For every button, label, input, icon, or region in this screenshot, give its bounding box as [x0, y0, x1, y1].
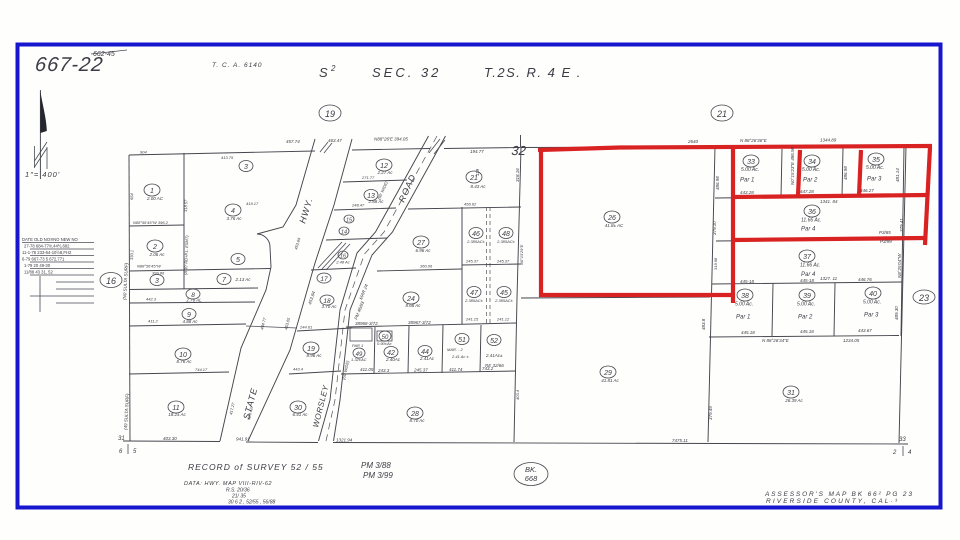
- svg-text:2.385AC±: 2.385AC±: [464, 298, 484, 303]
- svg-text:445.18: 445.18: [741, 330, 755, 335]
- svg-text:489.30: 489.30: [894, 306, 899, 320]
- svg-text:PAR 1: PAR 1: [352, 343, 363, 348]
- svg-text:1344.89: 1344.89: [820, 138, 837, 143]
- svg-text:N0°15'23"E 486.98: N0°15'23"E 486.98: [790, 146, 795, 185]
- svg-text:2.76 AL: 2.76 AL: [185, 298, 202, 303]
- svg-text:5: 5: [236, 257, 240, 264]
- svg-text:26.39 Ac: 26.39 Ac: [784, 398, 803, 403]
- svg-text:456.62: 456.62: [464, 202, 477, 207]
- svg-text:1: 1: [150, 188, 154, 195]
- svg-text:14: 14: [341, 230, 347, 236]
- svg-text:318.57: 318.57: [183, 199, 188, 212]
- svg-text:41.81 Ac: 41.81 Ac: [601, 378, 619, 383]
- svg-text:194.77: 194.77: [470, 149, 484, 154]
- svg-text:904: 904: [140, 150, 147, 155]
- svg-text:N 88°26'36"E: N 88°26'36"E: [740, 138, 768, 143]
- svg-text:2.385AC±: 2.385AC±: [466, 239, 486, 244]
- svg-text:2.27 Ac: 2.27 Ac: [376, 170, 393, 175]
- svg-text:1-79 20 49-30: 1-79 20 49-30: [24, 263, 51, 268]
- svg-text:445-18: 445-18: [740, 279, 755, 284]
- svg-text:45: 45: [500, 290, 508, 297]
- svg-text:SEC. 32: SEC. 32: [372, 65, 441, 80]
- svg-text:2.41Ac±: 2.41Ac±: [485, 353, 503, 358]
- svg-text:245.37: 245.37: [465, 259, 479, 264]
- svg-text:52: 52: [490, 338, 498, 345]
- svg-text:481.14: 481.14: [895, 168, 900, 182]
- svg-text:ASSESSOR'S MAP BK 66² PG: ASSESSOR'S MAP BK 66² PG 23: [764, 491, 912, 498]
- svg-text:11.66 Ac.: 11.66 Ac.: [800, 263, 821, 269]
- svg-text:319.98: 319.98: [713, 257, 718, 270]
- svg-text:19: 19: [307, 346, 315, 353]
- svg-text:27: 27: [416, 240, 426, 247]
- svg-text:6.96 Ac: 6.96 Ac: [415, 248, 431, 253]
- svg-text:15: 15: [346, 218, 353, 224]
- svg-text:37: 37: [803, 254, 812, 261]
- svg-text:Par 1: Par 1: [740, 178, 754, 184]
- svg-text:664: 664: [129, 192, 134, 200]
- svg-text:271.77: 271.77: [361, 175, 375, 180]
- svg-text:2.06 Ac: 2.06 Ac: [148, 252, 165, 257]
- svg-text:403.30: 403.30: [163, 436, 177, 441]
- svg-text:411.2: 411.2: [148, 319, 158, 324]
- svg-text:2: 2: [330, 64, 336, 73]
- svg-text:30 6 2 , 52/55 , 56/88: 30 6 2 , 52/55 , 56/88: [228, 500, 275, 506]
- svg-text:N8°25'04"W: N8°25'04"W: [897, 253, 902, 278]
- svg-text:941.91: 941.91: [236, 437, 250, 442]
- svg-text:248.47: 248.47: [351, 203, 365, 208]
- svg-text:486.98: 486.98: [715, 176, 720, 190]
- svg-text:12: 12: [380, 163, 388, 170]
- svg-text:16: 16: [106, 276, 116, 286]
- svg-text:30: 30: [294, 405, 302, 412]
- svg-text:1327. 11: 1327. 11: [820, 276, 838, 281]
- svg-text:27-78 684-77℗,44½,682: 27-78 684-77℗,44½,682: [24, 244, 70, 249]
- svg-text:445-18: 445-18: [800, 278, 815, 283]
- svg-text:N88°26'E 394.05: N88°26'E 394.05: [374, 137, 408, 142]
- svg-text:411.74: 411.74: [449, 367, 463, 372]
- svg-text:379.41: 379.41: [899, 218, 904, 232]
- svg-text:36: 36: [808, 209, 816, 216]
- svg-text:21: 21: [716, 109, 727, 119]
- svg-text:N 88°26'34"E: N 88°26'34"E: [762, 338, 790, 343]
- svg-text:DATA: HWY. MAP VIII-RIV: DATA: HWY. MAP VIII-RIV-62: [184, 481, 272, 487]
- svg-text:413.75: 413.75: [221, 155, 234, 160]
- svg-text:2.48 Ac: 2.48 Ac: [335, 260, 349, 265]
- svg-text:245.37: 245.37: [413, 368, 428, 373]
- svg-text:N0°13'29"E: N0°13'29"E: [519, 244, 524, 265]
- svg-text:4: 4: [231, 208, 235, 215]
- svg-text:2: 2: [892, 450, 897, 456]
- svg-text:243.3: 243.3: [377, 368, 390, 373]
- svg-text:29: 29: [603, 370, 612, 377]
- svg-text:445.18: 445.18: [800, 329, 814, 334]
- svg-text:447.28: 447.28: [800, 189, 814, 194]
- svg-text:Par 2: Par 2: [803, 178, 818, 184]
- svg-text:5.00 Ac.: 5.00 Ac.: [866, 165, 884, 171]
- svg-text:379.49: 379.49: [708, 406, 713, 420]
- svg-text:8.43 Ac: 8.43 Ac: [470, 184, 486, 189]
- svg-text:11/88 43 31, 52: 11/88 43 31, 52: [24, 270, 53, 275]
- svg-text:41.8± AC: 41.8± AC: [605, 223, 624, 228]
- svg-text:8.76 Ac: 8.76 Ac: [176, 359, 192, 364]
- svg-text:46: 46: [472, 231, 480, 238]
- svg-text:3.76 Ac: 3.76 Ac: [226, 216, 242, 221]
- svg-text:2: 2: [152, 244, 157, 251]
- svg-text:11-1-78 233-64-10½8,FH2: 11-1-78 233-64-10½8,FH2: [22, 250, 72, 255]
- svg-text:1321.94: 1321.94: [336, 438, 353, 443]
- svg-text:446.76: 446.76: [858, 277, 872, 282]
- svg-text:443.4: 443.4: [293, 367, 304, 372]
- svg-text:0.90±Ac: 0.90±Ac: [377, 341, 392, 346]
- svg-text:35: 35: [872, 157, 880, 164]
- svg-text:2.385AC±: 2.385AC±: [496, 239, 516, 244]
- svg-text:6.41 Ac: 6.41 Ac: [292, 412, 308, 417]
- svg-text:11: 11: [172, 405, 179, 412]
- svg-text:33: 33: [747, 159, 755, 166]
- svg-text:457.74: 457.74: [286, 139, 300, 144]
- svg-text:4.88 Ac: 4.88 Ac: [182, 319, 198, 324]
- svg-text:40: 40: [869, 291, 877, 298]
- svg-text:486.98: 486.98: [843, 166, 848, 180]
- svg-text:31: 31: [118, 436, 125, 442]
- svg-text:T. C. A. 6140: T. C. A. 6140: [212, 62, 262, 69]
- svg-text:483.8: 483.8: [701, 318, 706, 330]
- svg-text:360.06: 360.06: [420, 264, 433, 269]
- svg-text:T.2S. R. 4 E .: T.2S. R. 4 E .: [484, 65, 582, 80]
- svg-text:42: 42: [387, 350, 395, 357]
- svg-text:244.61: 244.61: [299, 325, 312, 330]
- svg-text:245.37: 245.37: [496, 259, 510, 264]
- svg-text:5.00 Ac.: 5.00 Ac.: [741, 167, 759, 173]
- svg-text:668: 668: [525, 474, 538, 483]
- svg-text:1234.05: 1234.05: [843, 338, 860, 343]
- svg-text:8.96 Ac: 8.96 Ac: [306, 353, 322, 358]
- svg-text:DATE OLD NO℗NO NEW NO: DATE OLD NO℗NO NEW NO: [22, 237, 79, 242]
- svg-text:743.2: 743.2: [482, 366, 494, 371]
- svg-text:Par 1: Par 1: [736, 315, 750, 321]
- svg-text:403.4: 403.4: [515, 389, 520, 400]
- svg-text:2.385AC±: 2.385AC±: [494, 298, 514, 303]
- svg-text:2.13 Ac: 2.13 Ac: [234, 277, 251, 282]
- svg-text:744.17: 744.17: [195, 367, 208, 372]
- svg-text:446.27: 446.27: [860, 188, 874, 193]
- svg-text:443.67: 443.67: [858, 328, 872, 333]
- svg-text:442.3: 442.3: [146, 297, 157, 302]
- svg-text:17: 17: [320, 276, 328, 283]
- svg-text:39: 39: [803, 293, 811, 300]
- svg-text:33: 33: [899, 437, 906, 443]
- svg-text:1341. 84: 1341. 84: [820, 199, 838, 204]
- svg-text:24: 24: [406, 296, 415, 303]
- svg-text:8.70 Ac: 8.70 Ac: [409, 418, 425, 423]
- svg-text:PM 3/88: PM 3/88: [361, 461, 391, 470]
- svg-text:241.12: 241.12: [496, 317, 510, 322]
- svg-text:44: 44: [421, 349, 429, 356]
- svg-text:RECORD of SURVEY 52 / 55: RECORD of SURVEY 52 / 55: [188, 462, 324, 472]
- svg-text:1.32±AC: 1.32±AC: [351, 357, 367, 362]
- svg-text:S: S: [319, 65, 328, 80]
- svg-text:419.17: 419.17: [246, 201, 259, 206]
- svg-text:P3/99: P3/99: [880, 239, 892, 244]
- svg-text:2.41 Ac ±: 2.41 Ac ±: [451, 354, 470, 359]
- svg-text:Par 3: Par 3: [867, 177, 882, 183]
- svg-text:6-79 667-73 5 672,771: 6-79 667-73 5 672,771: [22, 257, 65, 262]
- svg-text:28: 28: [410, 411, 419, 418]
- svg-text:51: 51: [458, 337, 466, 344]
- svg-text:N88°56'45"W: N88°56'45"W: [137, 264, 162, 269]
- svg-text:5.00 Ac.: 5.00 Ac.: [802, 167, 820, 173]
- svg-text:2640: 2640: [687, 139, 699, 144]
- svg-text:23: 23: [918, 293, 929, 303]
- svg-text:38967-3/72: 38967-3/72: [408, 320, 431, 325]
- svg-text:34: 34: [808, 159, 816, 166]
- svg-text:1"= 400': 1"= 400': [25, 170, 60, 179]
- svg-text:48: 48: [502, 231, 510, 238]
- svg-text:330.1: 330.1: [129, 250, 134, 260]
- svg-text:Par 4: Par 4: [801, 227, 816, 233]
- svg-text:38968-3/72: 38968-3/72: [355, 321, 378, 326]
- svg-text:19: 19: [325, 109, 335, 119]
- svg-text:8.68 Ac: 8.68 Ac: [405, 303, 421, 308]
- svg-text:38: 38: [741, 293, 749, 300]
- svg-text:PM 3/99: PM 3/99: [363, 471, 393, 480]
- svg-text:2.88 Ac: 2.88 Ac: [367, 199, 384, 204]
- svg-text:18.2± Ac: 18.2± Ac: [168, 412, 186, 417]
- svg-text:2.40Ac: 2.40Ac: [385, 357, 401, 362]
- svg-text:379.10: 379.10: [712, 221, 717, 235]
- svg-text:32: 32: [511, 143, 527, 158]
- svg-text:463.47: 463.47: [328, 138, 342, 143]
- svg-text:Par 2: Par 2: [798, 315, 813, 321]
- svg-text:241.15: 241.15: [465, 317, 479, 322]
- svg-text:47: 47: [470, 290, 479, 297]
- svg-text:N88°56'45"W 396.2: N88°56'45"W 396.2: [133, 220, 169, 225]
- svg-text:Par 3: Par 3: [864, 313, 879, 319]
- svg-text:411.05: 411.05: [360, 367, 374, 372]
- svg-text:BK.: BK.: [525, 465, 537, 474]
- svg-text:2.41Ac: 2.41Ac: [419, 356, 435, 361]
- svg-text:26: 26: [607, 215, 616, 222]
- svg-text:RIVERSIDE COUNTY, CAL·³: RIVERSIDE COUNTY, CAL·³: [766, 498, 898, 505]
- svg-text:119: 119: [475, 168, 480, 176]
- svg-text:3.70 Ac: 3.70 Ac: [321, 304, 337, 309]
- svg-text:9: 9: [187, 312, 191, 319]
- svg-text:P3/85: P3/85: [879, 230, 891, 235]
- svg-text:11.66 Ac.: 11.66 Ac.: [801, 218, 822, 224]
- svg-text:31: 31: [787, 390, 795, 397]
- svg-text:5.00 Ac.: 5.00 Ac.: [863, 300, 881, 306]
- svg-text:3: 3: [244, 164, 248, 171]
- svg-text:7475.11: 7475.11: [672, 438, 688, 443]
- svg-text:443.28: 443.28: [740, 190, 754, 195]
- svg-text:5.00 Ac.: 5.00 Ac.: [797, 302, 815, 308]
- svg-text:5.00 Ac.: 5.00 Ac.: [735, 302, 753, 308]
- svg-text:10: 10: [179, 352, 187, 359]
- svg-text:2.00 AC: 2.00 AC: [146, 196, 164, 201]
- svg-text:MAR. - 2: MAR. - 2: [447, 347, 464, 352]
- svg-text:3: 3: [155, 278, 159, 285]
- svg-text:318.16: 318.16: [515, 168, 520, 182]
- svg-text:399.86: 399.86: [152, 271, 165, 276]
